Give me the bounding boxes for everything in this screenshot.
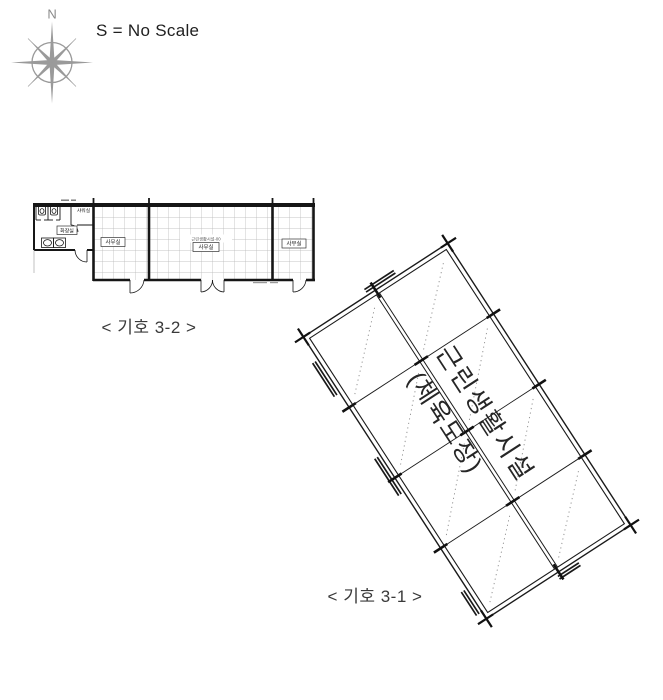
sink-fixture-icons [42, 238, 66, 248]
toilet-stalls [36, 205, 60, 220]
caption-symbol-3-2: < 기호 3-2 > [84, 313, 214, 338]
office-right-label: 사무실 [287, 240, 302, 248]
compass-north-label: N [47, 7, 56, 22]
office-left-label: 사무실 [106, 238, 121, 246]
small-plan: 샤워실 화장실 사무실 근린생활시설-00 사무실 사무실 [33, 198, 315, 293]
caption-symbol-3-1: < 기호 3-1 > [310, 582, 440, 607]
service-block-door [75, 250, 87, 262]
office-center-note: 근린생활시설-00 [191, 236, 221, 243]
large-plan: 근린생활시설 (체육도장) [290, 229, 645, 632]
shower-room-label: 샤워실 [77, 207, 90, 214]
office-center-label: 사무실 [199, 243, 214, 251]
scale-note: S = No Scale [96, 21, 199, 41]
hall-door-arcs [130, 280, 306, 293]
toilet-label: 화장실 [60, 227, 74, 234]
drawing-sheet: N [0, 0, 663, 700]
compass-rose: N [7, 7, 98, 108]
